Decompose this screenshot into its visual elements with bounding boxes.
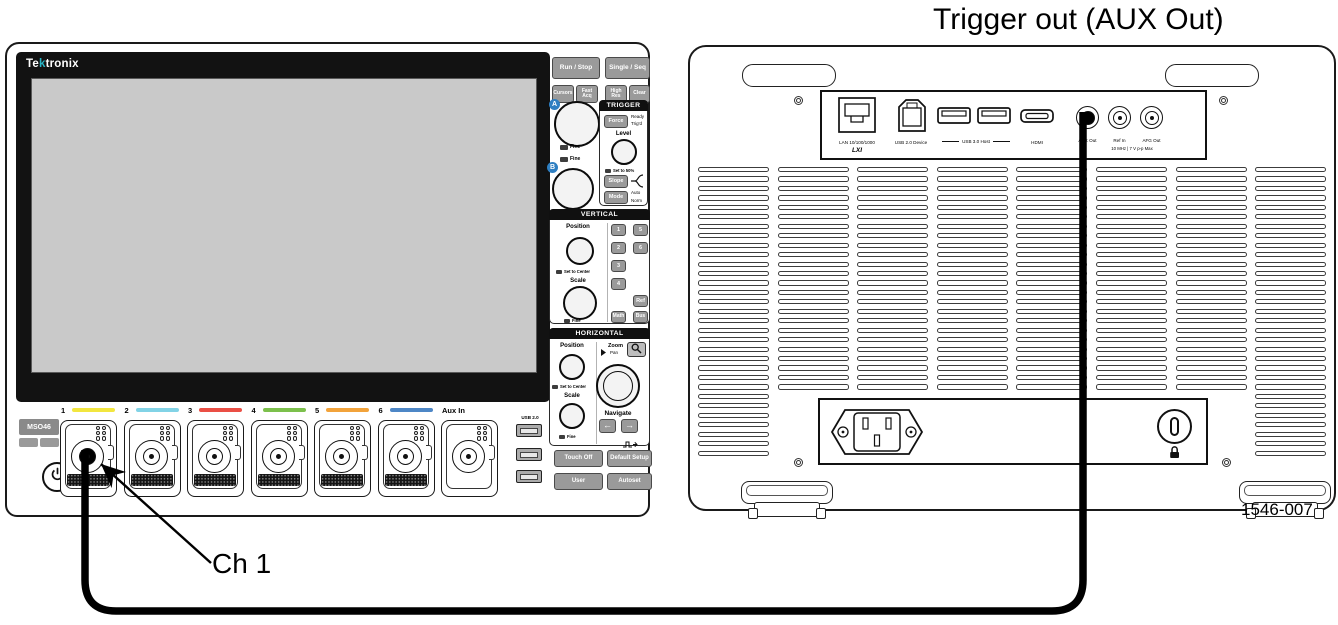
lan-port[interactable]: [838, 97, 876, 140]
bnc-ring: [262, 440, 295, 473]
vent-slot: [937, 347, 1008, 352]
bnc-input-connector[interactable]: [60, 420, 117, 497]
hdmi-port[interactable]: [1020, 109, 1054, 128]
vent-slot: [857, 205, 928, 210]
usb-host-label: USB 3.0 Host: [962, 139, 990, 144]
vent-slot: [698, 309, 769, 314]
vent-slot: [1255, 243, 1326, 248]
bnc-ring: [452, 440, 485, 473]
bnc-input-connector[interactable]: [314, 420, 371, 497]
vent-slot: [1255, 195, 1326, 200]
vent-slot: [1016, 299, 1087, 304]
usb-port[interactable]: [516, 424, 542, 437]
vent-slot: [1255, 224, 1326, 229]
vent-slot: [937, 176, 1008, 181]
connector-tab: [426, 445, 432, 460]
bnc-ring: [135, 440, 168, 473]
lock-keyhole: [1170, 417, 1179, 436]
usb-device-port[interactable]: [898, 99, 926, 137]
horizontal-position-knob[interactable]: [559, 354, 585, 380]
channel-2: 2: [124, 405, 181, 500]
vent-slot: [1255, 337, 1326, 342]
vent-slot: [937, 375, 1008, 380]
channel-4-button[interactable]: 4: [611, 278, 626, 290]
channel-1-button[interactable]: 1: [611, 224, 626, 236]
vent-slot: [1016, 271, 1087, 276]
vent-slot: [857, 252, 928, 257]
vent-slot: [857, 347, 928, 352]
connector-contact-strip: [385, 474, 427, 486]
vent-slot: [778, 299, 849, 304]
vent-slot: [1176, 347, 1247, 352]
fine-label: Fine: [570, 144, 580, 150]
bus-button[interactable]: Bus: [633, 311, 648, 323]
usb-slot: [520, 474, 538, 480]
auto-mode-label: Auto: [631, 190, 640, 195]
single-seq-button[interactable]: Single / Seq: [605, 57, 650, 79]
vent-slot: [698, 441, 769, 446]
bnc-pin: [466, 454, 471, 459]
channel-color-bar: [390, 408, 433, 412]
multipurpose-knob-b[interactable]: [552, 168, 594, 210]
vent-slot: [698, 214, 769, 219]
vent-slot: [698, 224, 769, 229]
fine-button-icon[interactable]: [560, 145, 568, 150]
vent-slot: [1176, 318, 1247, 323]
vent-slot: [1096, 224, 1167, 229]
vent-slot: [937, 167, 1008, 172]
vent-slot: [857, 290, 928, 295]
vent-slot: [857, 271, 928, 276]
fine-button-icon[interactable]: [560, 157, 568, 162]
probe-sense-pins: [414, 426, 425, 441]
vent-slot: [1016, 186, 1087, 191]
vent-slot: [1016, 280, 1087, 285]
vent-slot: [857, 337, 928, 342]
ready-led-label: Ready: [631, 114, 644, 119]
vent-slot: [1096, 186, 1167, 191]
vent-slot: [1176, 299, 1247, 304]
bnc-ring: [71, 440, 104, 473]
connector-contact-strip: [194, 474, 236, 486]
vent-slot: [937, 224, 1008, 229]
channel-5: 5: [314, 405, 371, 500]
vertical-position-knob[interactable]: [566, 237, 594, 265]
connector-tab: [489, 445, 495, 460]
vent-slot: [857, 365, 928, 370]
channel-header: 4: [251, 405, 308, 419]
zoom-button[interactable]: [627, 342, 646, 357]
vent-slot: [1176, 375, 1247, 380]
vent-slot: [1096, 243, 1167, 248]
multipurpose-knob-a[interactable]: [554, 101, 600, 147]
vent-slot: [1255, 167, 1326, 172]
horizontal-scale-label: Scale: [550, 393, 594, 399]
vent-slot: [698, 252, 769, 257]
screen-bezel: Tektronix: [16, 52, 550, 402]
vent-slot: [1255, 280, 1326, 285]
probe-sense-pins: [477, 426, 488, 441]
vent-slot: [1096, 233, 1167, 238]
trigger-level-knob[interactable]: [611, 139, 637, 165]
vent-slot: [937, 186, 1008, 191]
vent-slot: [1255, 356, 1326, 361]
vent-slot: [778, 365, 849, 370]
probe-sense-pins: [223, 426, 234, 441]
push-knob-icon[interactable]: [605, 169, 611, 173]
push-knob-icon[interactable]: [552, 385, 558, 389]
vent-slot: [1096, 309, 1167, 314]
afg-out-connector[interactable]: [1140, 106, 1163, 129]
vent-slot: [1096, 271, 1167, 276]
vent-slot: [778, 309, 849, 314]
bnc-ring: [1081, 111, 1095, 125]
push-knob-icon[interactable]: [564, 319, 570, 323]
bnc-input-connector[interactable]: [187, 420, 244, 497]
vent-slot: [1016, 375, 1087, 380]
vent-slot: [1255, 214, 1326, 219]
vent-slot: [778, 337, 849, 342]
vent-slot: [778, 290, 849, 295]
vent-slot: [1096, 252, 1167, 257]
vent-slot: [857, 384, 928, 389]
channel-3-button[interactable]: 3: [611, 260, 626, 272]
vent-slot: [1016, 252, 1087, 257]
vent-slot: [698, 413, 769, 418]
channel-row: 123456Aux In: [7, 405, 655, 505]
connector-tab: [362, 445, 368, 460]
vent-slot: [698, 328, 769, 333]
fine-label: Fine: [572, 318, 581, 323]
channel-5-button[interactable]: 5: [633, 224, 648, 236]
vent-slot: [698, 451, 769, 456]
vent-slot: [778, 318, 849, 323]
set-to-center-label: Set to Center: [560, 384, 586, 389]
usb-host-port[interactable]: [977, 107, 1011, 129]
vent-slot: [857, 299, 928, 304]
vent-slot: [1016, 205, 1087, 210]
vent-slot: [937, 318, 1008, 323]
vent-slot: [1176, 280, 1247, 285]
vent-slot: [778, 243, 849, 248]
vent-slot: [1016, 224, 1087, 229]
push-knob-icon[interactable]: [556, 270, 562, 274]
vent-slot: [1016, 214, 1087, 219]
vent-slot: [698, 176, 769, 181]
vent-slot: [857, 318, 928, 323]
vent-slot: [1016, 328, 1087, 333]
vent-slot: [698, 167, 769, 172]
vent-slot: [778, 328, 849, 333]
channel-color-bar: [136, 408, 179, 412]
logo-text: Te: [26, 58, 39, 70]
vent-slot: [857, 195, 928, 200]
vent-slot: [1255, 186, 1326, 191]
vent-slot: [1176, 167, 1247, 172]
vent-slot: [1255, 309, 1326, 314]
vent-slot: [1096, 356, 1167, 361]
rear-foot-pad: [754, 502, 820, 517]
vent-slot: [1016, 290, 1087, 295]
connector-contact-strip: [321, 474, 363, 486]
connector-tab: [299, 445, 305, 460]
vent-slot: [937, 205, 1008, 210]
vent-slot: [1255, 422, 1326, 427]
vent-slot: [1176, 356, 1247, 361]
bnc-pin: [1118, 116, 1122, 120]
ac-power-inlet[interactable]: [824, 406, 926, 463]
vent-slot: [698, 195, 769, 200]
bnc-ring: [198, 440, 231, 473]
ref-in-connector[interactable]: [1108, 106, 1131, 129]
zoom-pointer-icon: [600, 344, 607, 362]
pan-label: Pan: [610, 350, 618, 355]
zoom-label: Zoom: [608, 343, 623, 349]
channel-6-button[interactable]: 6: [633, 242, 648, 254]
vent-slot: [1096, 176, 1167, 181]
vent-slot: [1096, 167, 1167, 172]
label-dash: [942, 141, 959, 142]
hdmi-label: HDMI: [1010, 140, 1064, 145]
vent-slot: [698, 280, 769, 285]
vent-slot: [937, 262, 1008, 267]
usb-port[interactable]: [516, 470, 542, 483]
vent-slot: [698, 432, 769, 437]
bnc-ring: [389, 440, 422, 473]
padlock-icon: [1168, 445, 1181, 464]
math-button[interactable]: Math: [611, 311, 626, 323]
trigger-mode-button[interactable]: Mode: [604, 191, 628, 204]
security-lock-slot[interactable]: [1157, 409, 1192, 444]
vent-slot: [698, 347, 769, 352]
vent-slot: [1255, 290, 1326, 295]
panel-screw: [794, 458, 803, 467]
vent-slot: [1016, 262, 1087, 267]
vent-slot: [698, 262, 769, 267]
vent-slot: [1176, 195, 1247, 200]
vent-slot: [1176, 224, 1247, 229]
vent-slot: [698, 403, 769, 408]
run-stop-button[interactable]: Run / Stop: [552, 57, 600, 79]
power-lock-panel: [818, 398, 1208, 465]
bnc-input-connector[interactable]: [378, 420, 435, 497]
zoom-pan-outer-knob[interactable]: [596, 364, 640, 408]
vent-slot: [1176, 252, 1247, 257]
vent-slot: [698, 271, 769, 276]
bnc-input-connector[interactable]: [441, 420, 498, 497]
rear-handle-slot: [1165, 64, 1259, 87]
vent-slot: [698, 422, 769, 427]
vent-slot: [937, 271, 1008, 276]
bnc-pin: [276, 454, 281, 459]
channel-3: 3: [187, 405, 244, 500]
channel-color-bar: [199, 408, 242, 412]
bnc-input-connector[interactable]: [251, 420, 308, 497]
aux-out-connector[interactable]: [1076, 106, 1099, 129]
vent-slot: [937, 195, 1008, 200]
slope-button[interactable]: Slope: [604, 175, 628, 188]
vertical-scale-knob[interactable]: [563, 286, 597, 320]
bnc-pin: [85, 454, 90, 459]
vent-slot: [778, 195, 849, 200]
vent-slot: [1255, 262, 1326, 267]
label-dash: [993, 141, 1010, 142]
bnc-pin: [212, 454, 217, 459]
vent-slot: [1016, 365, 1087, 370]
vent-slot: [1255, 441, 1326, 446]
vent-slot: [857, 224, 928, 229]
lxi-logo: LXI: [822, 147, 892, 154]
vent-slot: [857, 280, 928, 285]
vent-slot: [698, 186, 769, 191]
vent-slot: [778, 252, 849, 257]
vent-slot: [937, 214, 1008, 219]
vent-slot: [698, 290, 769, 295]
vent-slot: [698, 205, 769, 210]
vertical-section: VERTICAL Position Set to Center Scale Fi…: [549, 209, 650, 324]
foot-nub: [1314, 508, 1324, 519]
vent-slot: [1176, 328, 1247, 333]
connector-contact-strip: [258, 474, 300, 486]
channel-number-label: 2: [125, 406, 129, 415]
trigger-section-header: TRIGGER: [599, 100, 648, 111]
vent-slot: [1255, 233, 1326, 238]
vertical-scale-label: Scale: [553, 278, 603, 284]
vent-slot: [1255, 318, 1326, 323]
vent-slot: [698, 243, 769, 248]
ref-button[interactable]: Ref: [633, 295, 648, 307]
vent-slot: [698, 233, 769, 238]
vertical-section-header: VERTICAL: [549, 209, 650, 220]
vent-slot: [1176, 233, 1247, 238]
section-divider: [607, 223, 608, 322]
probe-sense-pins: [350, 426, 361, 441]
vent-slot: [1255, 271, 1326, 276]
logo-text: tronix: [46, 58, 79, 70]
vent-slot: [1096, 205, 1167, 210]
vent-slot: [857, 186, 928, 191]
vent-slot: [1255, 432, 1326, 437]
vent-slot: [1255, 205, 1326, 210]
afg-out-label: AFG Out: [1131, 138, 1172, 143]
vent-slot: [937, 384, 1008, 389]
vent-slot: [1096, 280, 1167, 285]
probe-sense-pins: [160, 426, 171, 441]
touchscreen-display[interactable]: [31, 78, 537, 373]
channel-6: 6: [378, 405, 435, 500]
channel-number-label: 6: [379, 406, 383, 415]
vent-slot: [857, 233, 928, 238]
tektronix-logo: Tektronix: [26, 58, 79, 70]
channel-4: 4: [251, 405, 308, 500]
vent-slot: [778, 280, 849, 285]
probe-sense-pins: [287, 426, 298, 441]
vent-slot: [698, 365, 769, 370]
vent-slot: [857, 356, 928, 361]
vent-slot: [778, 167, 849, 172]
bnc-pin: [403, 454, 408, 459]
set-to-center-label: Set to Center: [564, 269, 590, 274]
vent-slot: [937, 299, 1008, 304]
vent-slot: [778, 176, 849, 181]
channel-number-label: 5: [315, 406, 319, 415]
vent-slot: [1096, 318, 1167, 323]
vent-slot: [937, 290, 1008, 295]
vertical-position-label: Position: [553, 224, 603, 230]
vent-slot: [778, 224, 849, 229]
force-button[interactable]: Force: [604, 115, 628, 128]
vent-slot: [857, 262, 928, 267]
usb-slot: [520, 428, 538, 434]
vent-slot: [1096, 195, 1167, 200]
usb-port[interactable]: [516, 448, 542, 461]
figure-number: 1546-007: [1241, 500, 1313, 520]
vent-slot: [1016, 243, 1087, 248]
channel-header: 6: [378, 405, 435, 419]
vent-slot: [778, 375, 849, 380]
knob-a-badge: A: [549, 99, 560, 110]
vent-slot: [778, 186, 849, 191]
vent-slot: [1096, 347, 1167, 352]
channel-aux-in: Aux In: [441, 405, 498, 500]
vent-slot: [937, 233, 1008, 238]
vent-slot: [937, 280, 1008, 285]
bnc-ring: [325, 440, 358, 473]
vent-slot: [1176, 365, 1247, 370]
vent-slot: [1255, 413, 1326, 418]
channel-number-label: Aux In: [442, 406, 465, 415]
vent-slot: [1176, 337, 1247, 342]
vent-slot: [1176, 262, 1247, 267]
usb-host-port[interactable]: [937, 107, 971, 129]
vent-slot: [1016, 176, 1087, 181]
vent-slot: [778, 262, 849, 267]
vent-slot: [937, 328, 1008, 333]
vent-slot: [857, 375, 928, 380]
oscilloscope-front-panel: Tektronix Run / Stop Single / Seq Cursor…: [5, 42, 650, 517]
foot-nub: [748, 508, 758, 519]
vent-slot: [857, 309, 928, 314]
probe-sense-pins: [96, 426, 107, 441]
vent-slot: [937, 243, 1008, 248]
rear-io-strip: LAN 10/100/1000 LXI USB 2.0 Device USB 3…: [820, 90, 1207, 160]
vent-slot: [1016, 356, 1087, 361]
knob-b-badge: B: [547, 162, 558, 173]
vent-slot: [1016, 195, 1087, 200]
vent-slot: [778, 205, 849, 210]
channel-2-button[interactable]: 2: [611, 242, 626, 254]
vent-slot: [778, 347, 849, 352]
vent-slot: [1176, 205, 1247, 210]
vent-slot: [1176, 243, 1247, 248]
channel-header: 1: [60, 405, 117, 419]
horizontal-section-header: HORIZONTAL: [549, 328, 650, 339]
channel-header: 3: [187, 405, 244, 419]
vent-slot: [1255, 176, 1326, 181]
vent-slot: [1255, 384, 1326, 389]
navigate-inner-knob[interactable]: [603, 371, 633, 401]
trigd-led-label: Trig'd: [631, 121, 642, 126]
vent-slot: [1176, 214, 1247, 219]
channel-header: Aux In: [441, 405, 498, 419]
usb-host-label-row: USB 3.0 Host: [930, 139, 1022, 144]
bnc-input-connector[interactable]: [124, 420, 181, 497]
vent-slot: [1096, 262, 1167, 267]
vent-slot: [698, 384, 769, 389]
vent-slot: [1176, 186, 1247, 191]
vent-slot: [778, 214, 849, 219]
panel-screw: [1222, 458, 1231, 467]
